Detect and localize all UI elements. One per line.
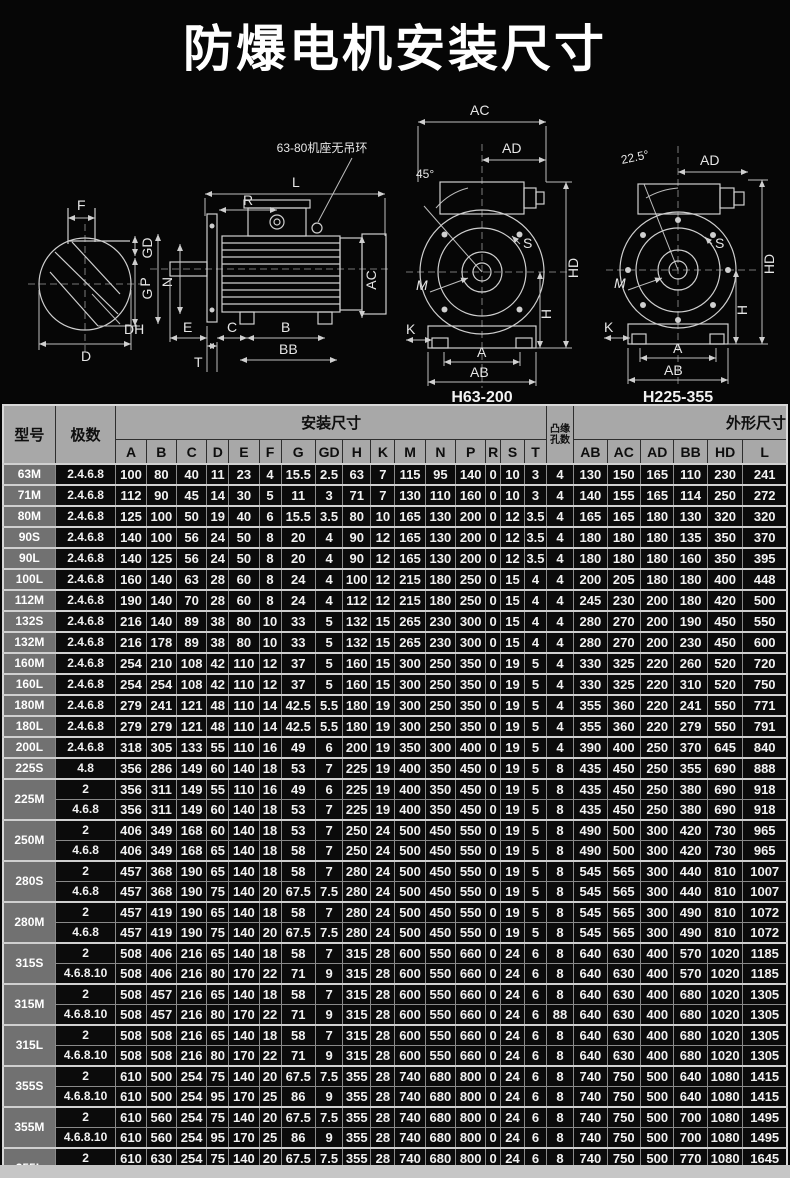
value-cell: 700: [674, 1128, 707, 1149]
value-cell: 110: [229, 653, 259, 674]
value-cell: 660: [456, 943, 486, 964]
value-cell: 1020: [707, 1046, 743, 1067]
value-cell: 5: [525, 779, 547, 800]
value-cell: 7: [315, 1025, 342, 1046]
value-cell: 15: [371, 674, 395, 695]
header-cols-row: A B C D E F G GD H K M N P R S T AB AC A…: [3, 440, 787, 465]
value-cell: 200: [641, 632, 674, 653]
value-cell: 24: [500, 1066, 524, 1087]
value-cell: 550: [707, 695, 743, 716]
value-cell: 6: [525, 1005, 547, 1026]
value-cell: 254: [177, 1066, 207, 1087]
table-row: 250M240634916860140185372502450045055001…: [3, 820, 787, 841]
value-cell: 500: [395, 861, 425, 882]
value-cell: 86: [281, 1128, 315, 1149]
value-cell: 140: [229, 758, 259, 779]
value-cell: 350: [707, 548, 743, 569]
value-cell: 5.5: [315, 716, 342, 737]
value-cell: 630: [607, 1005, 640, 1026]
value-cell: 8: [546, 841, 573, 862]
value-cell: 140: [229, 841, 259, 862]
value-cell: 550: [425, 964, 455, 985]
value-cell: 280: [574, 632, 607, 653]
dim-label-a-right: A: [673, 340, 683, 356]
value-cell: 140: [229, 1066, 259, 1087]
value-cell: 680: [425, 1087, 455, 1108]
diagram-panel: F GD G DH D 63-80机座无吊环 L: [0, 86, 790, 404]
value-cell: 30: [229, 485, 259, 506]
value-cell: 8: [546, 902, 573, 923]
value-cell: 215: [395, 590, 425, 611]
value-cell: 5: [315, 674, 342, 695]
value-cell: 60: [207, 800, 229, 821]
value-cell: 4: [546, 737, 573, 758]
value-cell: 11: [281, 485, 315, 506]
value-cell: 360: [607, 695, 640, 716]
value-cell: 8: [546, 1128, 573, 1149]
value-cell: 216: [116, 632, 146, 653]
value-cell: 19: [371, 800, 395, 821]
value-cell: 500: [395, 841, 425, 862]
model-cell: 112M: [3, 590, 55, 611]
value-cell: 450: [607, 758, 640, 779]
col-l: L: [743, 440, 787, 465]
value-cell: 300: [641, 923, 674, 944]
value-cell: 8: [546, 861, 573, 882]
value-cell: 4: [315, 590, 342, 611]
dim-label-ab-right: AB: [664, 362, 683, 378]
value-cell: 448: [743, 569, 787, 590]
value-cell: 19: [500, 902, 524, 923]
value-cell: 7: [315, 758, 342, 779]
value-cell: 356: [116, 758, 146, 779]
value-cell: 280: [574, 611, 607, 632]
value-cell: 220: [641, 716, 674, 737]
value-cell: 600: [395, 1025, 425, 1046]
value-cell: 6: [315, 779, 342, 800]
value-cell: 216: [177, 1005, 207, 1026]
value-cell: 165: [641, 485, 674, 506]
value-cell: 5.5: [315, 695, 342, 716]
value-cell: 230: [707, 464, 743, 485]
value-cell: 1007: [743, 882, 787, 903]
col-hd: HD: [707, 440, 743, 465]
value-cell: 280: [343, 861, 371, 882]
value-cell: 100: [116, 464, 146, 485]
table-row: 100L2.4.6.816014063286082441001221518025…: [3, 569, 787, 590]
value-cell: 450: [425, 923, 455, 944]
value-cell: 130: [425, 527, 455, 548]
value-cell: 190: [116, 590, 146, 611]
table-row: 4.6.8457419190751402067.57.5280245004505…: [3, 923, 787, 944]
poles-cell: 2.4.6.8: [55, 527, 116, 548]
poles-cell: 4.6.8: [55, 923, 116, 944]
poles-cell: 2: [55, 1025, 116, 1046]
model-cell: 280S: [3, 861, 55, 902]
value-cell: 170: [229, 1128, 259, 1149]
value-cell: 130: [425, 506, 455, 527]
value-cell: 24: [500, 943, 524, 964]
value-cell: 300: [641, 841, 674, 862]
value-cell: 740: [574, 1128, 607, 1149]
value-cell: 250: [425, 653, 455, 674]
value-cell: 12: [371, 527, 395, 548]
value-cell: 0: [486, 1128, 501, 1149]
value-cell: 272: [743, 485, 787, 506]
caption-h225-355: H225-355: [643, 389, 713, 404]
value-cell: 550: [425, 1046, 455, 1067]
table-row: 90L2.4.6.8140125562450820490121651302000…: [3, 548, 787, 569]
table-row: 63M2.4.6.810080401123415.52.563711595140…: [3, 464, 787, 485]
value-cell: 4: [546, 674, 573, 695]
value-cell: 71: [281, 1005, 315, 1026]
dim-label-f: F: [77, 197, 86, 213]
table-row: 132M2.4.6.821617889388010335132152652303…: [3, 632, 787, 653]
value-cell: 12: [500, 548, 524, 569]
table-row: 180M2.4.6.8279241121481101442.55.5180193…: [3, 695, 787, 716]
value-cell: 140: [229, 984, 259, 1005]
value-cell: 325: [607, 653, 640, 674]
value-cell: 100: [146, 527, 176, 548]
value-cell: 4: [546, 464, 573, 485]
value-cell: 740: [574, 1087, 607, 1108]
value-cell: 600: [395, 1005, 425, 1026]
table-row: 315M250845721665140185873152860055066002…: [3, 984, 787, 1005]
value-cell: 5: [525, 800, 547, 821]
value-cell: 55: [207, 779, 229, 800]
value-cell: 130: [395, 485, 425, 506]
value-cell: 0: [486, 758, 501, 779]
value-cell: 370: [743, 527, 787, 548]
value-cell: 125: [146, 548, 176, 569]
value-cell: 1305: [743, 1046, 787, 1067]
value-cell: 508: [146, 1046, 176, 1067]
value-cell: 520: [707, 653, 743, 674]
value-cell: 4: [315, 527, 342, 548]
value-cell: 250: [641, 779, 674, 800]
value-cell: 550: [456, 861, 486, 882]
value-cell: 400: [607, 737, 640, 758]
value-cell: 180: [641, 548, 674, 569]
value-cell: 300: [425, 737, 455, 758]
value-cell: 3: [315, 485, 342, 506]
value-cell: 315: [343, 1025, 371, 1046]
value-cell: 318: [116, 737, 146, 758]
value-cell: 38: [207, 611, 229, 632]
table-row: 315L250850821665140185873152860055066002…: [3, 1025, 787, 1046]
value-cell: 4: [546, 506, 573, 527]
value-cell: 457: [116, 882, 146, 903]
value-cell: 500: [395, 820, 425, 841]
value-cell: 500: [641, 1087, 674, 1108]
value-cell: 225: [343, 779, 371, 800]
value-cell: 133: [177, 737, 207, 758]
value-cell: 19: [500, 800, 524, 821]
value-cell: 80: [207, 1005, 229, 1026]
header-flange-holes: 凸缘孔数: [546, 405, 573, 464]
value-cell: 406: [146, 964, 176, 985]
value-cell: 200: [641, 611, 674, 632]
value-cell: 45: [177, 485, 207, 506]
model-cell: 180M: [3, 695, 55, 716]
value-cell: 5: [525, 861, 547, 882]
poles-cell: 2: [55, 943, 116, 964]
value-cell: 8: [546, 923, 573, 944]
value-cell: 18: [259, 820, 281, 841]
value-cell: 170: [229, 1087, 259, 1108]
dim-label-g: G: [139, 289, 155, 300]
table-row: 160L2.4.6.825425410842110123751601530025…: [3, 674, 787, 695]
value-cell: 19: [500, 758, 524, 779]
value-cell: 300: [641, 882, 674, 903]
table-row: 4.6.8.1050840621680170227193152860055066…: [3, 964, 787, 985]
poles-cell: 2: [55, 779, 116, 800]
value-cell: 545: [574, 861, 607, 882]
value-cell: 395: [743, 548, 787, 569]
value-cell: 680: [674, 1046, 707, 1067]
value-cell: 5: [259, 485, 281, 506]
value-cell: 500: [641, 1066, 674, 1087]
value-cell: 18: [259, 841, 281, 862]
value-cell: 88: [546, 1005, 573, 1026]
value-cell: 600: [395, 1046, 425, 1067]
value-cell: 110: [674, 464, 707, 485]
col-m: M: [395, 440, 425, 465]
value-cell: 5: [525, 695, 547, 716]
value-cell: 28: [207, 590, 229, 611]
value-cell: 140: [456, 464, 486, 485]
value-cell: 490: [674, 923, 707, 944]
value-cell: 149: [177, 758, 207, 779]
value-cell: 508: [116, 1046, 146, 1067]
angle-45-label: 45°: [416, 167, 434, 181]
poles-cell: 4.6.8.10: [55, 1087, 116, 1108]
value-cell: 65: [207, 984, 229, 1005]
value-cell: 600: [395, 984, 425, 1005]
value-cell: 112: [116, 485, 146, 506]
value-cell: 8: [546, 779, 573, 800]
value-cell: 250: [343, 841, 371, 862]
value-cell: 230: [425, 611, 455, 632]
value-cell: 19: [500, 820, 524, 841]
value-cell: 24: [500, 1128, 524, 1149]
value-cell: 250: [456, 569, 486, 590]
value-cell: 545: [574, 902, 607, 923]
value-cell: 18: [259, 800, 281, 821]
value-cell: 216: [177, 1046, 207, 1067]
value-cell: 3.5: [315, 506, 342, 527]
value-cell: 810: [707, 923, 743, 944]
value-cell: 180: [674, 590, 707, 611]
value-cell: 37: [281, 674, 315, 695]
value-cell: 270: [607, 611, 640, 632]
value-cell: 140: [229, 800, 259, 821]
value-cell: 350: [456, 695, 486, 716]
value-cell: 220: [641, 674, 674, 695]
value-cell: 89: [177, 611, 207, 632]
value-cell: 435: [574, 758, 607, 779]
value-cell: 8: [546, 758, 573, 779]
table-row: 132S2.4.6.821614089388010335132152652303…: [3, 611, 787, 632]
value-cell: 165: [607, 506, 640, 527]
value-cell: 450: [456, 800, 486, 821]
table-row: 315S250840621665140185873152860055066002…: [3, 943, 787, 964]
value-cell: 0: [486, 674, 501, 695]
table-row: 4.6.8.1061056025495170258693552874068080…: [3, 1128, 787, 1149]
value-cell: 380: [674, 800, 707, 821]
value-cell: 1020: [707, 984, 743, 1005]
value-cell: 740: [395, 1087, 425, 1108]
value-cell: 560: [146, 1107, 176, 1128]
table-row: 355S2610500254751402067.57.5355287406808…: [3, 1066, 787, 1087]
value-cell: 165: [641, 464, 674, 485]
value-cell: 5: [315, 611, 342, 632]
value-cell: 140: [229, 1025, 259, 1046]
value-cell: 250: [343, 820, 371, 841]
value-cell: 53: [281, 758, 315, 779]
value-cell: 6: [525, 1025, 547, 1046]
value-cell: 315: [343, 943, 371, 964]
value-cell: 24: [207, 548, 229, 569]
model-cell: 160M: [3, 653, 55, 674]
table-row: 90S2.4.6.8140100562450820490121651302000…: [3, 527, 787, 548]
value-cell: 810: [707, 882, 743, 903]
value-cell: 500: [146, 1087, 176, 1108]
value-cell: 550: [456, 841, 486, 862]
value-cell: 490: [674, 902, 707, 923]
value-cell: 254: [116, 653, 146, 674]
value-cell: 50: [177, 506, 207, 527]
model-cell: 225S: [3, 758, 55, 779]
value-cell: 400: [456, 737, 486, 758]
value-cell: 0: [486, 943, 501, 964]
value-cell: 100: [343, 569, 371, 590]
table-row: 4.6.835631114960140185372251940035045001…: [3, 800, 787, 821]
value-cell: 180: [574, 527, 607, 548]
poles-cell: 2.4.6.8: [55, 569, 116, 590]
dim-label-s-left: S: [523, 235, 532, 251]
value-cell: 435: [574, 800, 607, 821]
value-cell: 65: [207, 943, 229, 964]
model-cell: 315S: [3, 943, 55, 984]
poles-cell: 4.6.8.10: [55, 1005, 116, 1026]
value-cell: 10: [500, 464, 524, 485]
value-cell: 4: [525, 611, 547, 632]
value-cell: 6: [315, 737, 342, 758]
value-cell: 918: [743, 800, 787, 821]
table-row: 160M2.4.6.825421010842110123751601530025…: [3, 653, 787, 674]
value-cell: 8: [259, 590, 281, 611]
value-cell: 420: [674, 841, 707, 862]
value-cell: 800: [456, 1107, 486, 1128]
value-cell: 750: [607, 1107, 640, 1128]
value-cell: 565: [607, 902, 640, 923]
value-cell: 15: [500, 611, 524, 632]
value-cell: 110: [425, 485, 455, 506]
value-cell: 25: [259, 1128, 281, 1149]
value-cell: 56: [177, 548, 207, 569]
value-cell: 545: [574, 923, 607, 944]
value-cell: 8: [546, 964, 573, 985]
value-cell: 400: [641, 1005, 674, 1026]
value-cell: 67.5: [281, 1107, 315, 1128]
value-cell: 165: [395, 527, 425, 548]
value-cell: 71: [343, 485, 371, 506]
value-cell: 24: [500, 1107, 524, 1128]
value-cell: 60: [207, 758, 229, 779]
value-cell: 645: [707, 737, 743, 758]
value-cell: 180: [641, 506, 674, 527]
value-cell: 8: [546, 1025, 573, 1046]
value-cell: 5: [525, 737, 547, 758]
value-cell: 140: [229, 943, 259, 964]
poles-cell: 2.4.6.8: [55, 548, 116, 569]
value-cell: 20: [259, 1066, 281, 1087]
value-cell: 680: [425, 1066, 455, 1087]
value-cell: 550: [425, 1005, 455, 1026]
value-cell: 15: [371, 653, 395, 674]
value-cell: 9: [315, 1128, 342, 1149]
value-cell: 5: [525, 758, 547, 779]
value-cell: 58: [281, 943, 315, 964]
no-lifting-ring-note: 63-80机座无吊环: [277, 140, 368, 155]
value-cell: 19: [500, 737, 524, 758]
value-cell: 350: [456, 674, 486, 695]
value-cell: 349: [146, 841, 176, 862]
value-cell: 12: [371, 548, 395, 569]
value-cell: 42: [207, 674, 229, 695]
value-cell: 700: [674, 1107, 707, 1128]
model-cell: 280M: [3, 902, 55, 943]
value-cell: 37: [281, 653, 315, 674]
value-cell: 200: [574, 569, 607, 590]
table-row: 4.6.8457368190751402067.57.5280245004505…: [3, 882, 787, 903]
value-cell: 320: [707, 506, 743, 527]
value-cell: 165: [395, 548, 425, 569]
value-cell: 33: [281, 632, 315, 653]
value-cell: 190: [674, 611, 707, 632]
value-cell: 3: [525, 485, 547, 506]
value-cell: 0: [486, 737, 501, 758]
value-cell: 180: [641, 527, 674, 548]
page-title: 防爆电机安装尺寸: [0, 0, 790, 86]
value-cell: 22: [259, 964, 281, 985]
value-cell: 19: [371, 716, 395, 737]
dim-label-t: T: [194, 354, 203, 370]
table-body: 63M2.4.6.810080401123415.52.563711595140…: [3, 464, 787, 1178]
dim-label-ad-left: AD: [502, 140, 521, 156]
value-cell: 220: [641, 695, 674, 716]
model-cell: 355S: [3, 1066, 55, 1107]
value-cell: 180: [641, 569, 674, 590]
value-cell: 140: [146, 611, 176, 632]
value-cell: 280: [343, 923, 371, 944]
value-cell: 4: [546, 611, 573, 632]
value-cell: 965: [743, 841, 787, 862]
value-cell: 10: [500, 485, 524, 506]
value-cell: 6: [259, 506, 281, 527]
value-cell: 7.5: [315, 1107, 342, 1128]
table-row: 180L2.4.6.8279279121481101442.55.5180193…: [3, 716, 787, 737]
value-cell: 24: [500, 1005, 524, 1026]
value-cell: 10: [259, 611, 281, 632]
value-cell: 80: [207, 1046, 229, 1067]
header-group-row: 型号 极数 安装尺寸 凸缘孔数 外形尺寸: [3, 405, 787, 440]
poles-cell: 2.4.6.8: [55, 590, 116, 611]
value-cell: 350: [425, 758, 455, 779]
col-gd: GD: [315, 440, 342, 465]
value-cell: 15: [371, 611, 395, 632]
